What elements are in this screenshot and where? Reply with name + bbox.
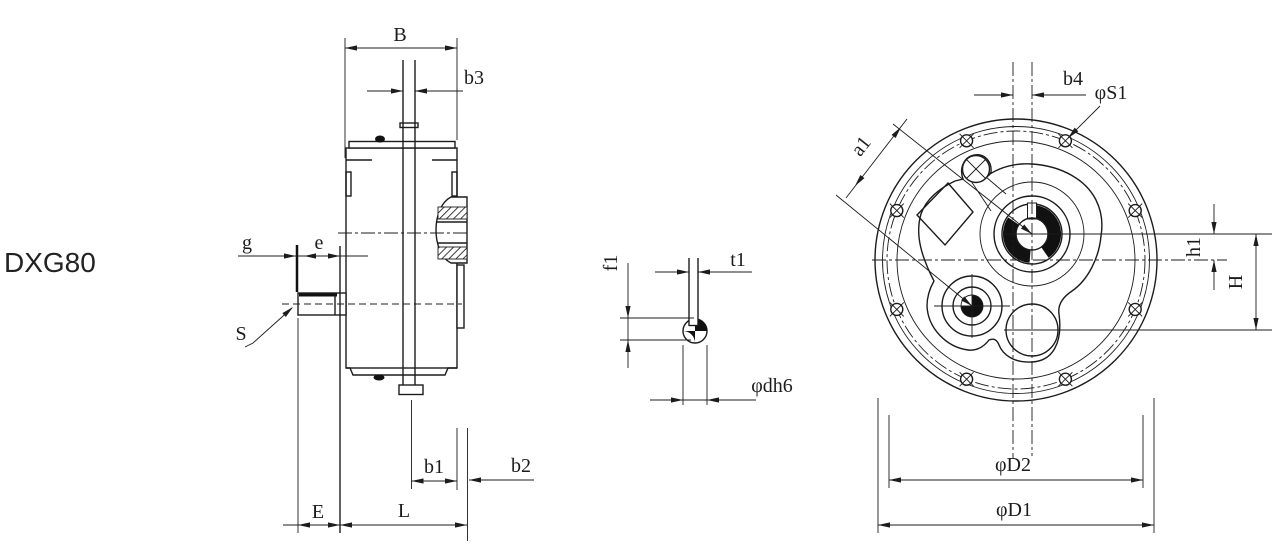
dim-label-t1: t1: [730, 249, 746, 271]
side-view: B b3 g e S E L b1: [235, 24, 534, 541]
dim-label-b4: b4: [1063, 68, 1083, 90]
dim-label-B: B: [393, 24, 406, 46]
dim-label-phi-S1: φS1: [1095, 82, 1128, 104]
dim-label-a1: a1: [847, 132, 876, 160]
dim-label-b1: b1: [424, 456, 444, 478]
dim-label-g: g: [242, 232, 252, 254]
dim-label-phi-D1: φD1: [996, 499, 1032, 521]
model-label: DXG80: [4, 247, 96, 278]
front-view: b4 φS1 a1 h1 H φD2: [836, 62, 1272, 533]
dim-label-b2: b2: [511, 455, 531, 477]
dim-label-e: e: [315, 232, 324, 254]
engineering-drawing: DXG80: [0, 0, 1288, 552]
dim-label-S: S: [235, 323, 246, 345]
dim-label-f1: f1: [600, 255, 622, 272]
dim-label-phi-D2: φD2: [995, 454, 1031, 476]
dim-label-b3: b3: [464, 67, 484, 89]
dim-label-H: H: [1225, 275, 1247, 289]
vent-plug-circle: [963, 156, 1007, 212]
dim-label-E: E: [312, 501, 324, 523]
dim-label-h1: h1: [1183, 237, 1205, 257]
dim-label-phi-dh6: φdh6: [751, 375, 793, 397]
dim-label-L: L: [398, 500, 410, 522]
nameplate-diamond: [917, 183, 973, 245]
drawing-page: DXG80: [0, 0, 1288, 552]
shaft-key-detail-view: f1 t1 φdh6: [600, 249, 793, 405]
